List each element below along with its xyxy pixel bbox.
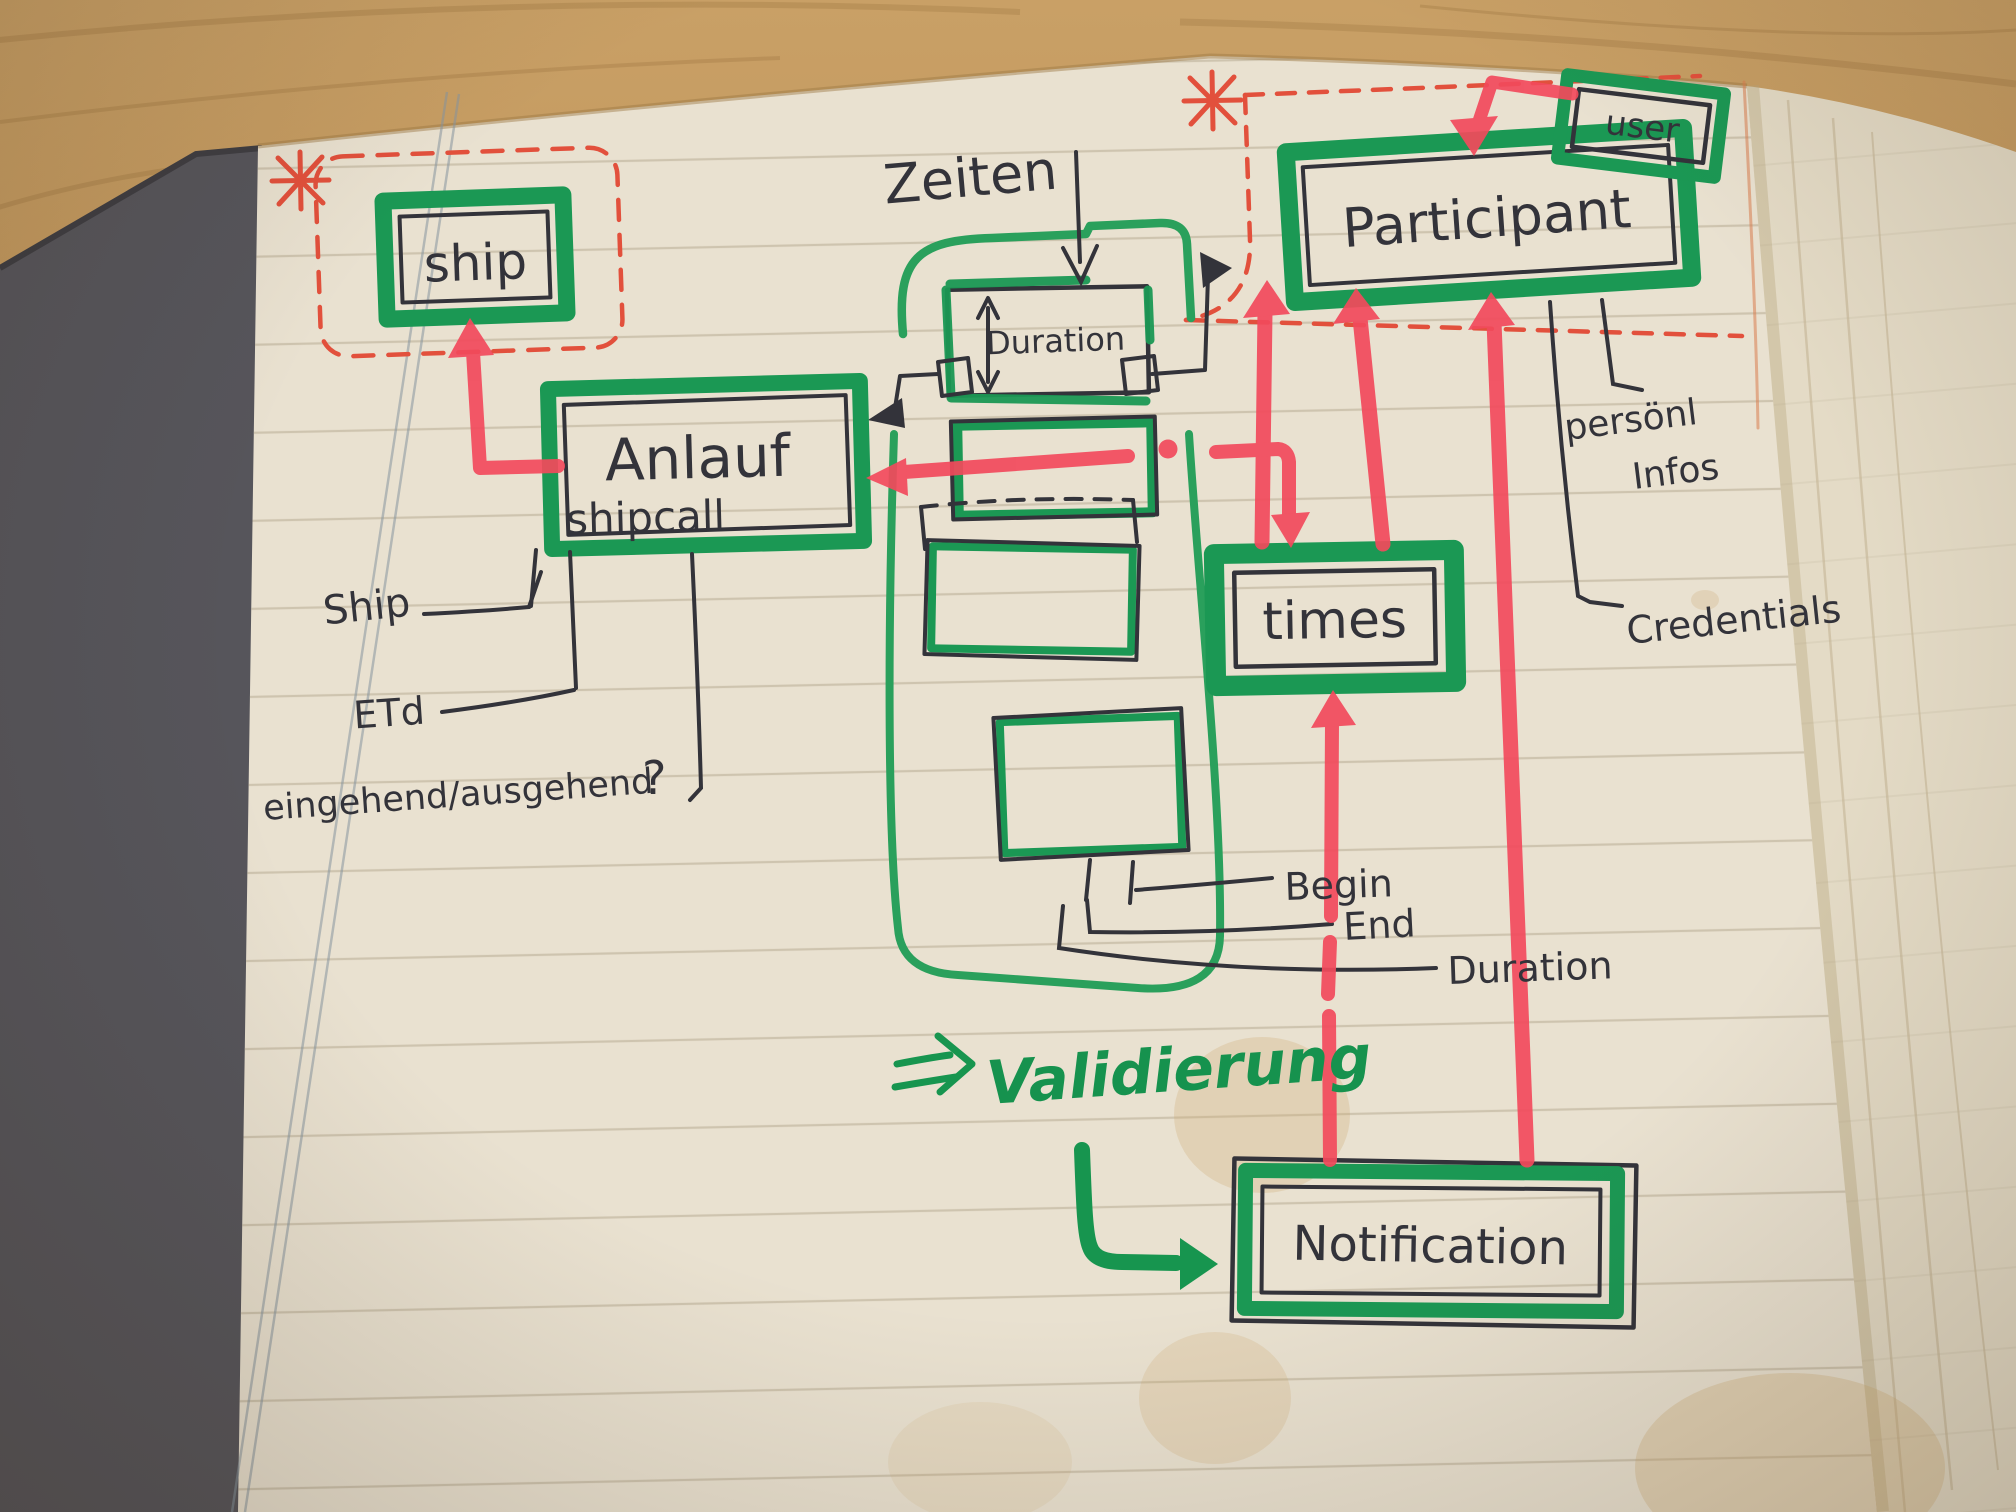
eta-label: ETd — [352, 689, 426, 738]
ship-label: ship — [423, 232, 528, 294]
participant-asterisk — [1184, 72, 1241, 129]
shipcall-label: shipcall — [566, 491, 726, 544]
sketch-canvas: ship Anlauf shipcall Duration Participan… — [0, 0, 2016, 1512]
times-label: times — [1262, 590, 1408, 653]
duration-box-label: Duration — [986, 320, 1126, 363]
end-label: End — [1342, 901, 1416, 949]
ship-asterisk — [272, 152, 329, 209]
notification-label: Notification — [1292, 1216, 1568, 1277]
question-mark-label: ? — [642, 751, 666, 805]
duration-attr-label: Duration — [1447, 943, 1613, 993]
begin-label: Begin — [1284, 861, 1394, 909]
ship-attr-label: Ship — [321, 580, 413, 635]
anlauf-label: Anlauf — [604, 422, 793, 495]
notebook-photo: ship Anlauf shipcall Duration Participan… — [0, 0, 2016, 1512]
